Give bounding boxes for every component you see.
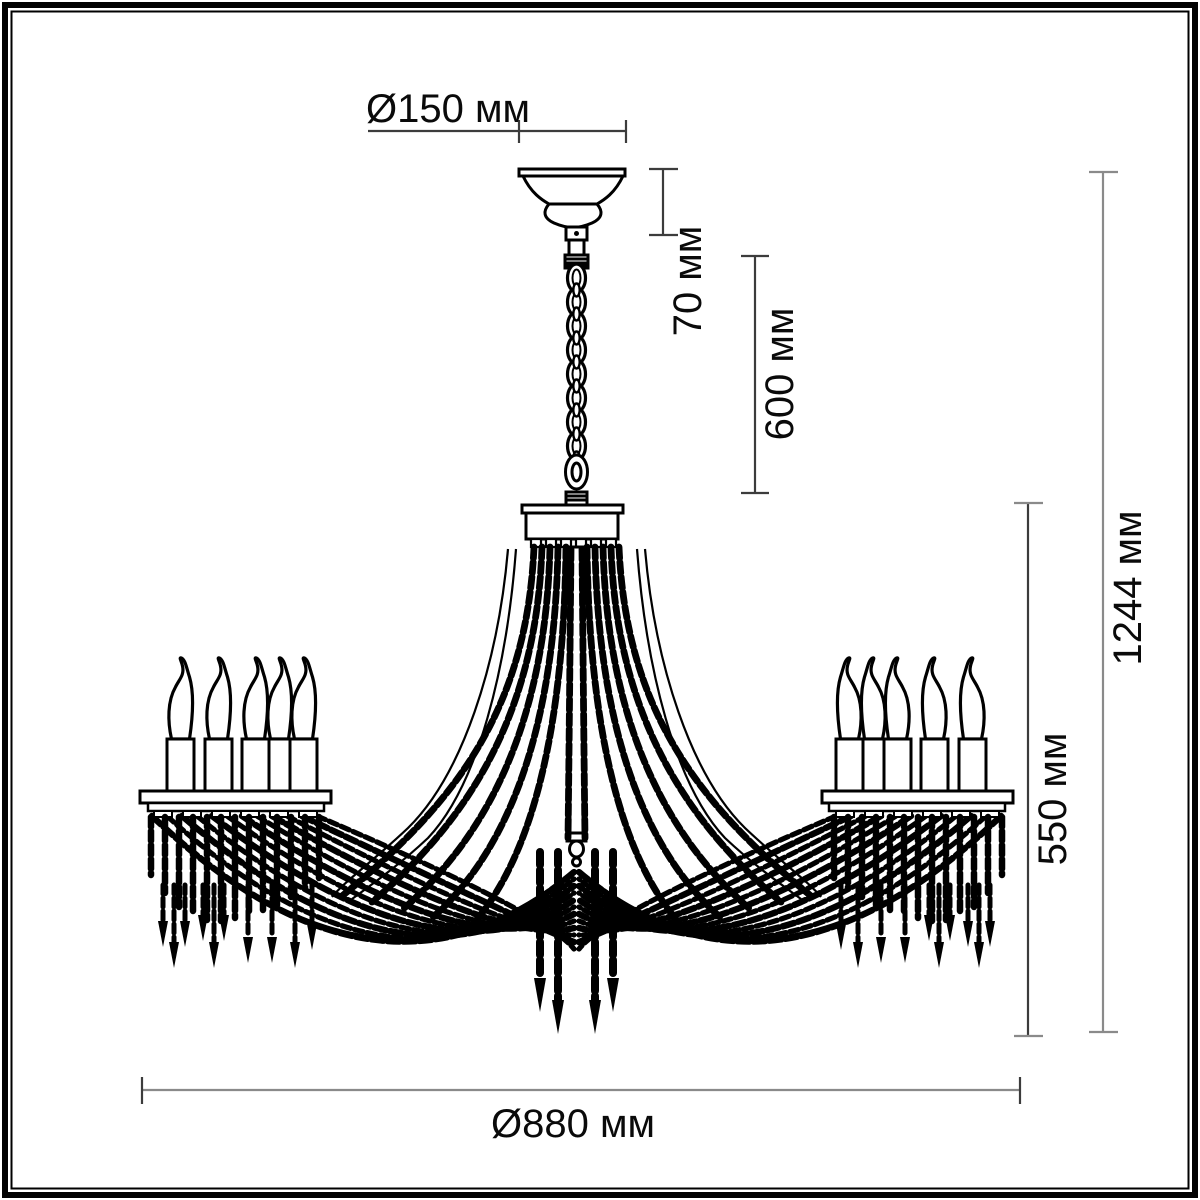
crystal-drop-tip — [876, 937, 886, 963]
crystal-drop-tip — [243, 937, 253, 963]
dimension-body-diameter: Ø880 мм — [142, 1077, 1020, 1146]
connector-pin — [574, 231, 579, 236]
candle-flame — [169, 658, 193, 739]
chain — [568, 264, 586, 484]
center-pendant-tip — [589, 1000, 601, 1034]
candle-flame — [837, 658, 861, 739]
chain-link-side — [573, 404, 579, 417]
chain-link-side — [573, 380, 579, 393]
bobeche-lower — [148, 803, 324, 811]
candle-flame — [292, 658, 316, 739]
crystal-drop-tip — [198, 915, 208, 941]
crystal-drop-tip — [267, 937, 277, 963]
center-pendant-tip — [552, 1000, 564, 1034]
candle-flame — [922, 658, 946, 739]
chain-link-side — [573, 356, 579, 369]
chain-link-side — [573, 284, 579, 297]
crystal-drop-tip — [963, 921, 973, 947]
finial-ring — [573, 858, 581, 866]
dim-label-body-height: 550 мм — [1031, 733, 1075, 866]
canopy-bell — [523, 176, 623, 204]
chain-link-side — [573, 308, 579, 321]
chandelier-dimension-drawing: Ø150 мм 70 мм 600 мм 1244 мм 550 мм Ø880… — [0, 0, 1200, 1200]
crystal-drop-tip — [900, 937, 910, 963]
dimension-total-height: 1244 мм — [1089, 172, 1150, 1032]
candle-body — [167, 739, 194, 792]
hub-loop-hole — [572, 463, 581, 481]
dim-label-body-diameter: Ø880 мм — [491, 1102, 655, 1146]
crystal-drop-tip — [290, 942, 300, 968]
dimensions: Ø150 мм 70 мм 600 мм 1244 мм 550 мм Ø880… — [142, 87, 1150, 1146]
bobeche-plate — [140, 791, 331, 803]
candle-body — [884, 739, 911, 792]
dimension-canopy-diameter: Ø150 мм — [366, 87, 627, 143]
canopy-bowl — [545, 204, 601, 228]
candle-body — [836, 739, 863, 792]
chain-link-side — [573, 332, 579, 345]
crystal-drop-tip — [307, 924, 317, 950]
crystal-drop-tip — [209, 942, 219, 968]
candle-body — [290, 739, 317, 792]
trumpet-strand — [568, 549, 571, 838]
candle-flame — [885, 658, 909, 739]
dim-label-total-height: 1244 мм — [1106, 510, 1150, 665]
candle-body — [242, 739, 269, 792]
chain-link-side — [573, 428, 579, 441]
crystal-drop-tip — [974, 942, 984, 968]
candle-flame — [960, 658, 984, 739]
crystal-drop-tip — [945, 915, 955, 941]
dim-line-canopy-height — [649, 169, 678, 235]
candle-body — [205, 739, 232, 792]
crystal-drop-tip — [836, 924, 846, 950]
dimension-canopy-height: 70 мм — [649, 169, 710, 336]
dimension-chain-length: 600 мм — [741, 256, 802, 493]
center-pendant-tip — [607, 978, 619, 1012]
center-pendant-tip — [534, 978, 546, 1012]
bobeche-lower — [829, 803, 1005, 811]
candle-body — [959, 739, 986, 792]
crystal-drop-tip — [985, 921, 995, 947]
trumpet-strand — [582, 549, 585, 838]
crystal-drop-tip — [934, 942, 944, 968]
crystal-drop-tip — [924, 915, 934, 941]
dim-label-canopy-height: 70 мм — [666, 226, 710, 337]
crystal-drop-tip — [219, 915, 229, 941]
crystal-drop-tip — [180, 921, 190, 947]
candle-flame — [244, 658, 268, 739]
dim-label-chain-length: 600 мм — [758, 308, 802, 441]
candle-flame — [268, 658, 292, 739]
drawing-canvas: Ø150 мм 70 мм 600 мм 1244 мм 550 мм Ø880… — [0, 0, 1200, 1200]
candle-flame — [861, 658, 885, 739]
hub-box — [526, 513, 618, 539]
dim-label-canopy-diameter: Ø150 мм — [366, 87, 530, 131]
dimension-body-height: 550 мм — [1014, 503, 1075, 1036]
crystal-drop-tip — [158, 921, 168, 947]
crystal-drop-tip — [853, 942, 863, 968]
candle-flame — [207, 658, 231, 739]
finial-ball — [570, 841, 584, 857]
crystal-drop-tip — [169, 942, 179, 968]
candle-body — [921, 739, 948, 792]
suspension-stem — [569, 240, 584, 255]
bobeche-plate — [822, 791, 1013, 803]
